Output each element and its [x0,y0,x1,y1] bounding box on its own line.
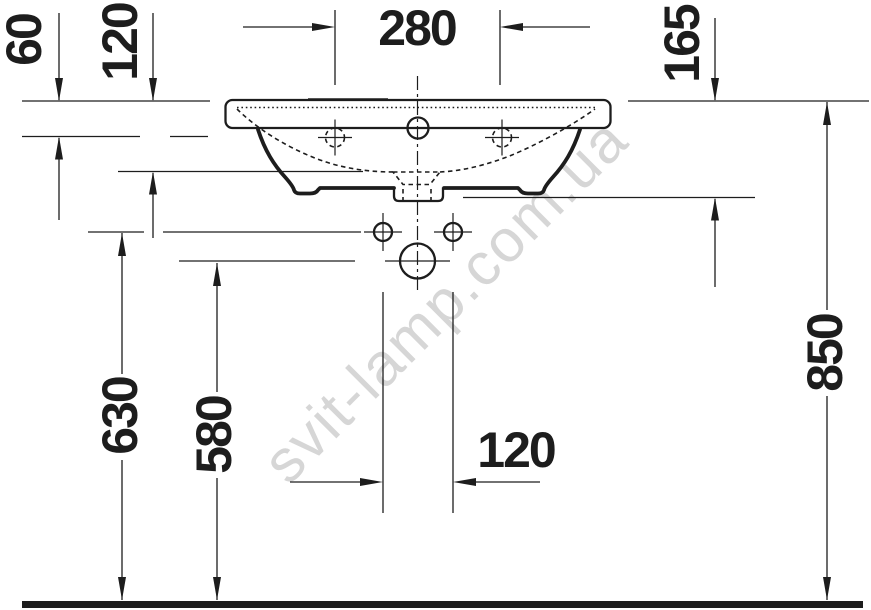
dimension-60: 60 [0,13,63,220]
basin-inner-curve-right [440,109,595,172]
dim-label-850: 850 [797,314,853,392]
arrow-left-icon [500,23,523,31]
dim-label-630: 630 [92,377,148,455]
arrow-down-icon [823,577,831,600]
drain-recess-hidden [393,172,440,185]
dimension-580: 580 [186,263,242,600]
fixing-hole-right-crosshair [434,213,472,251]
floor-line [22,601,863,608]
arrow-up-icon [149,172,157,195]
arrow-down-icon [149,78,157,101]
drawing-canvas: svit-lamp.com.ua [0,0,871,610]
arrow-left-icon [453,478,476,486]
arrow-down-icon [711,78,719,101]
dim-label-580: 580 [186,396,242,474]
arrow-up-icon [823,102,831,125]
arrow-down-icon [118,577,126,600]
dim-label-280: 280 [378,0,456,56]
drain-flange [394,188,443,202]
faucet-hole-left-crosshair [318,120,352,156]
faucet-hole-right-crosshair [485,120,519,156]
dim-label-120-left: 120 [92,3,148,81]
dim-label-60: 60 [0,14,52,66]
dimension-120-bottom: 120 [290,422,555,486]
arrow-down-icon [213,577,221,600]
dimension-120-left: 120 [92,3,157,238]
washbasin-body [226,76,611,291]
dim-label-165: 165 [654,4,710,83]
dimension-165: 165 [654,4,719,287]
dimension-630: 630 [92,233,148,600]
arrow-up-icon [55,137,63,160]
dimension-280: 280 [243,0,590,56]
washbasin-technical-drawing: 60 120 280 165 850 [0,0,871,610]
dim-label-120-bottom: 120 [477,422,555,478]
arrow-right-icon [360,478,383,486]
arrow-up-icon [118,233,126,256]
arrow-up-icon [213,263,221,286]
fixing-hole-left-crosshair [364,213,402,251]
arrow-right-icon [312,23,335,31]
dimension-850: 850 [797,102,853,600]
arrow-down-icon [55,78,63,101]
arrow-up-icon [711,198,719,221]
